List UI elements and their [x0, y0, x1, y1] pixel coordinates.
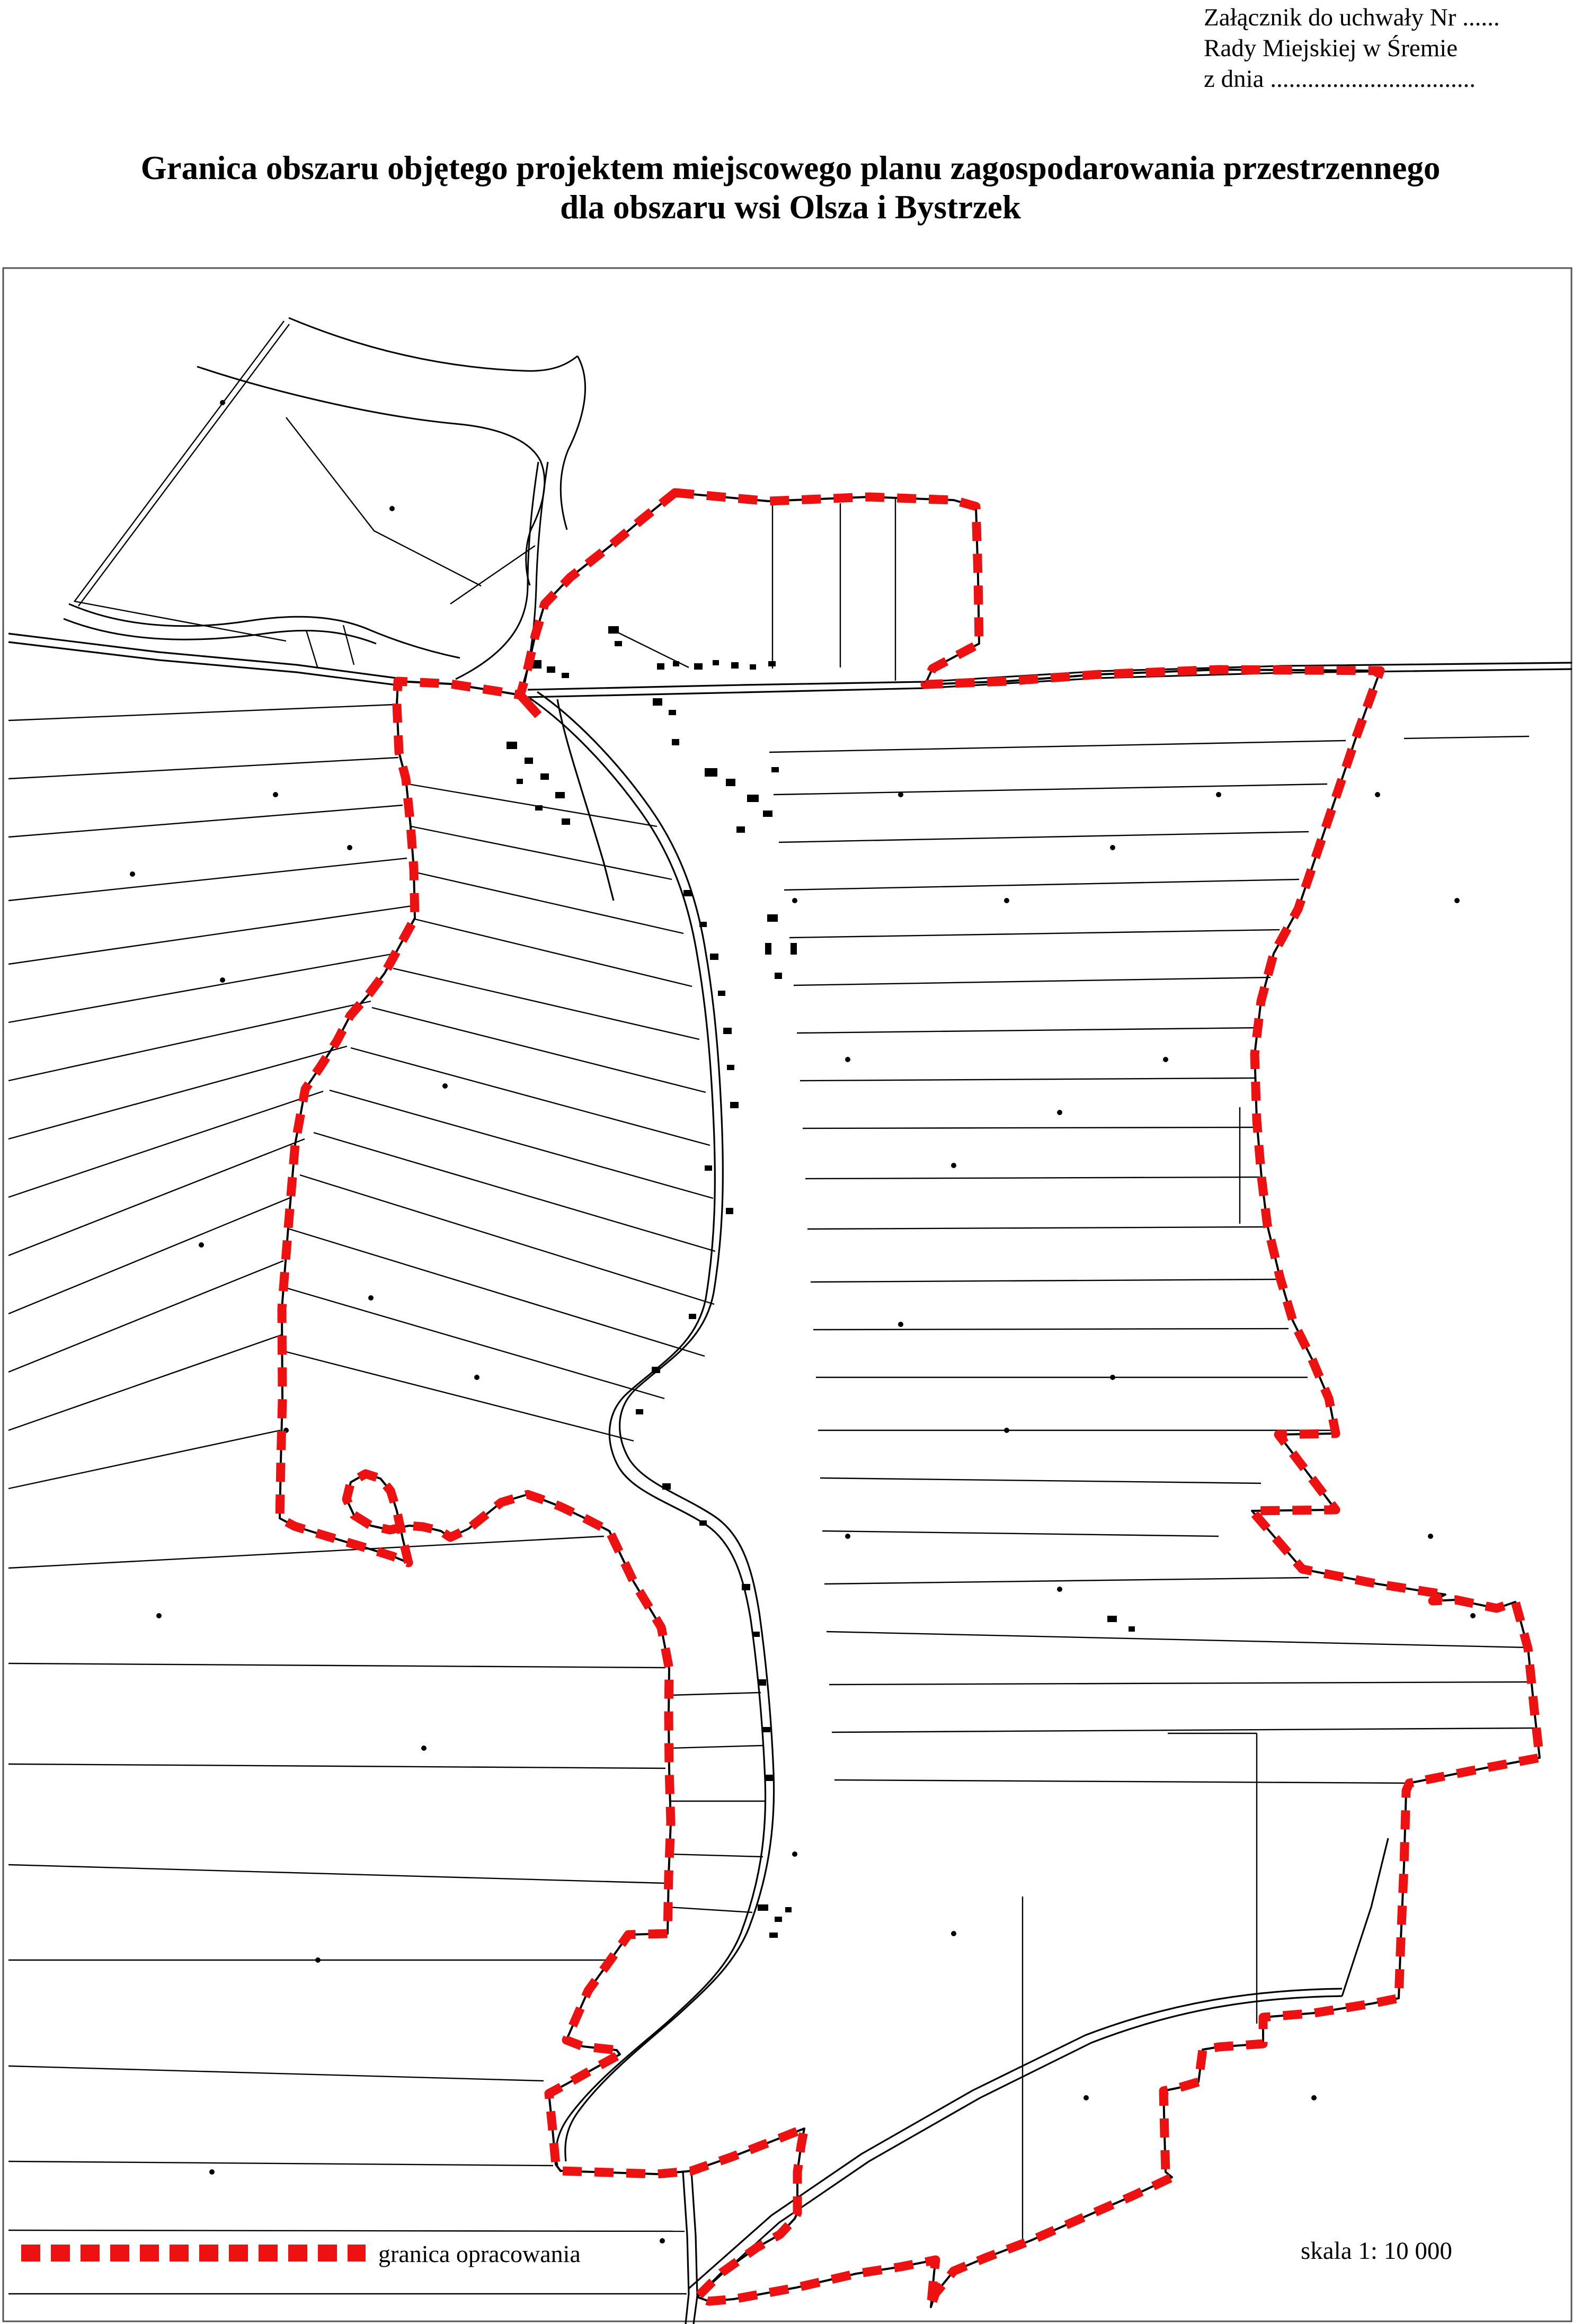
building	[758, 1904, 768, 1911]
road-line	[8, 634, 396, 678]
parcel-line	[8, 1865, 667, 1883]
parcel-line	[8, 906, 412, 964]
parcel-line	[827, 1632, 1528, 1648]
parcel-line	[414, 872, 683, 933]
parcel-marker-dot	[273, 792, 278, 797]
attachment-note: Załącznik do uchwały Nr ...... Rady Miej…	[1204, 2, 1500, 94]
parcel-marker-dot	[220, 977, 225, 983]
building	[562, 673, 569, 678]
building	[547, 666, 555, 673]
building	[540, 773, 549, 780]
parcel-line	[8, 1139, 305, 1256]
parcel-line	[74, 321, 284, 602]
parcel-marker-dot	[898, 1322, 903, 1327]
road-line	[1342, 1838, 1388, 1996]
parcel-line	[794, 977, 1271, 985]
parcel-line	[8, 1197, 291, 1314]
parcel-line	[8, 705, 395, 720]
parcel-line	[330, 1090, 713, 1198]
parcel-marker-dot	[898, 792, 903, 797]
parcel-line	[803, 1127, 1257, 1128]
map-border	[3, 268, 1571, 2321]
parcel-line	[8, 1091, 323, 1197]
parcel-line	[797, 1028, 1260, 1033]
attachment-note-line2: Rady Miejskiej w Śremie	[1204, 33, 1500, 64]
building	[752, 1632, 760, 1637]
attachment-note-line1: Załącznik do uchwały Nr ......	[1204, 2, 1500, 33]
parcel-line	[800, 1078, 1256, 1081]
parcel-line	[8, 2161, 553, 2166]
parcel-line	[372, 1008, 706, 1092]
parcel-marker-dot	[421, 1746, 427, 1751]
building	[750, 664, 756, 670]
parcel-marker-dot	[1110, 1375, 1115, 1380]
page-title-line2: dla obszaru wsi Olsza i Bystrzek	[0, 188, 1581, 227]
parcel-marker-dot	[660, 2238, 665, 2243]
parcel-marker-dot	[1375, 792, 1380, 797]
map-canvas	[0, 0, 1581, 2324]
building	[694, 663, 703, 670]
building	[771, 767, 779, 772]
building	[507, 742, 517, 749]
building	[1129, 1626, 1135, 1632]
parcel-line	[668, 1907, 752, 1912]
parcel-marker-dot	[951, 1163, 956, 1168]
road-line	[528, 663, 1572, 690]
building	[699, 1520, 707, 1526]
parcel-line	[415, 919, 692, 986]
building	[615, 641, 622, 646]
parcel-line	[820, 1478, 1261, 1483]
building	[1107, 1616, 1117, 1622]
parcel-marker-dot	[209, 2169, 215, 2175]
parcel-line	[805, 1177, 1260, 1179]
parcel-marker-dot	[845, 1057, 850, 1062]
road-line	[697, 1996, 1342, 2296]
building	[769, 1933, 778, 1938]
parcel-marker-dot	[1311, 2095, 1317, 2100]
parcel-marker-dot	[156, 1613, 162, 1618]
parcel-line	[774, 784, 1327, 795]
parcel-marker-dot	[1057, 1587, 1062, 1592]
building	[652, 1367, 660, 1373]
parcel-marker-dot	[474, 1375, 479, 1380]
parcel-marker-dot	[130, 871, 135, 877]
building	[710, 954, 718, 960]
parcel-marker-dot	[845, 1534, 850, 1539]
page-title: Granica obszaru objętego projektem miejs…	[0, 148, 1581, 227]
parcel-line	[8, 1335, 281, 1430]
road-line	[683, 2172, 689, 2324]
parcel-line	[8, 758, 398, 779]
parcel-line	[834, 1780, 1409, 1783]
parcel-line	[832, 1728, 1535, 1732]
parcel-line	[393, 968, 699, 1039]
building	[517, 779, 523, 784]
parcel-marker-dot	[1110, 845, 1115, 850]
parcel-marker-dot	[347, 845, 352, 850]
parcel-line	[670, 1746, 763, 1748]
building	[699, 922, 707, 927]
parcel-marker-dot	[1004, 898, 1009, 903]
building	[763, 1727, 770, 1732]
building	[785, 1907, 792, 1912]
parcel-marker-dot	[1083, 2095, 1089, 2100]
parcel-line	[789, 930, 1280, 938]
river-line	[69, 604, 460, 658]
parcel-line	[813, 1329, 1289, 1330]
building	[768, 661, 776, 666]
building	[683, 890, 692, 896]
building	[555, 792, 565, 798]
building	[689, 1314, 696, 1319]
parcel-marker-dot	[1454, 898, 1460, 903]
building	[791, 943, 797, 955]
road-line	[691, 2171, 697, 2324]
road-line	[557, 699, 614, 901]
building	[747, 795, 759, 802]
legend-boundary-label: granica opracowania	[378, 2240, 581, 2268]
building	[727, 1065, 734, 1070]
building	[673, 661, 679, 666]
building	[726, 1208, 733, 1214]
parcel-line	[8, 1764, 665, 1768]
building	[705, 768, 717, 777]
parcel-line	[1404, 736, 1529, 738]
river-line	[64, 619, 376, 644]
parcel-line	[8, 954, 395, 1022]
building	[723, 1028, 732, 1034]
building	[662, 1483, 671, 1490]
parcel-line	[669, 1854, 763, 1857]
parcel-line	[822, 1531, 1219, 1536]
parcel-line	[8, 805, 403, 837]
parcel-line	[343, 625, 354, 665]
plan-document-page: Załącznik do uchwały Nr ...... Rady Miej…	[0, 0, 1581, 2324]
parcel-line	[74, 601, 286, 641]
attachment-note-line3: z dnia .................................	[1204, 64, 1500, 94]
building	[766, 1775, 774, 1781]
parcel-marker-dot	[199, 1242, 204, 1248]
parcel-line	[314, 1133, 715, 1251]
parcel-line	[8, 2066, 544, 2081]
parcel-marker-dot	[1163, 1057, 1168, 1062]
parcel-line	[8, 1430, 280, 1489]
parcel-line	[8, 1536, 604, 1568]
parcel-line	[784, 879, 1299, 890]
parcel-line	[286, 417, 481, 586]
building	[763, 811, 772, 817]
building	[742, 1584, 750, 1590]
parcel-line	[824, 1578, 1309, 1584]
parcel-marker-dot	[1057, 1110, 1062, 1115]
building	[731, 662, 739, 669]
parcel-line	[779, 832, 1309, 842]
building	[713, 660, 719, 665]
parcel-marker-dot	[1004, 1428, 1009, 1433]
parcel-line	[284, 1287, 664, 1399]
building	[758, 1679, 766, 1686]
building	[525, 758, 533, 764]
parcel-line	[8, 1663, 665, 1668]
parcel-line	[450, 546, 535, 604]
parcel-line	[289, 1229, 705, 1356]
plan-boundary-spur	[520, 695, 538, 715]
parcel-marker-dot	[951, 1931, 956, 1936]
parcel-line	[769, 741, 1346, 752]
map-scale-label: skala 1: 10 000	[1301, 2237, 1452, 2265]
parcel-marker-dot	[220, 400, 225, 405]
river-line	[197, 367, 545, 585]
parcel-marker-dot	[1216, 792, 1221, 797]
building	[765, 943, 771, 955]
parcel-line	[811, 1279, 1276, 1282]
parcel-line	[8, 2230, 685, 2231]
parcel-marker-dot	[368, 1295, 374, 1301]
building	[705, 1165, 712, 1171]
parcel-line	[411, 826, 672, 879]
building	[657, 663, 664, 670]
parcel-marker-dot	[389, 506, 395, 511]
building	[562, 818, 570, 825]
parcel-marker-dot	[442, 1083, 448, 1089]
building	[726, 779, 735, 786]
building	[775, 1917, 782, 1922]
building	[718, 991, 725, 996]
building	[608, 626, 619, 634]
building	[636, 1409, 643, 1414]
parcel-line	[300, 1175, 714, 1304]
building	[672, 739, 679, 745]
parcel-line	[671, 1693, 761, 1695]
parcel-line	[282, 1351, 634, 1441]
road-line	[8, 642, 396, 685]
parcel-line	[78, 324, 289, 606]
building	[730, 1102, 739, 1108]
plan-boundary-dashed-line	[280, 493, 1540, 2307]
road-line	[528, 669, 1572, 697]
building	[767, 914, 778, 922]
parcel-marker-dot	[1470, 1613, 1476, 1618]
parcel-line	[829, 1682, 1531, 1685]
parcel-marker-dot	[792, 898, 797, 903]
parcel-line	[408, 784, 657, 826]
building	[775, 973, 782, 979]
building	[535, 805, 543, 811]
road-line	[530, 698, 766, 2166]
river-line	[561, 356, 585, 530]
parcel-line	[8, 858, 407, 901]
parcel-marker-dot	[792, 1851, 797, 1857]
building	[653, 698, 662, 706]
page-title-line1: Granica obszaru objętego projektem miejs…	[0, 148, 1581, 188]
parcel-line	[807, 1227, 1266, 1229]
river-line	[289, 318, 578, 371]
building	[669, 710, 676, 715]
parcel-line	[306, 630, 318, 669]
parcel-marker-dot	[1428, 1534, 1433, 1539]
building	[736, 826, 745, 833]
parcel-line	[8, 1261, 283, 1372]
parcel-marker-dot	[315, 1957, 321, 1963]
parcel-line	[351, 1048, 710, 1145]
